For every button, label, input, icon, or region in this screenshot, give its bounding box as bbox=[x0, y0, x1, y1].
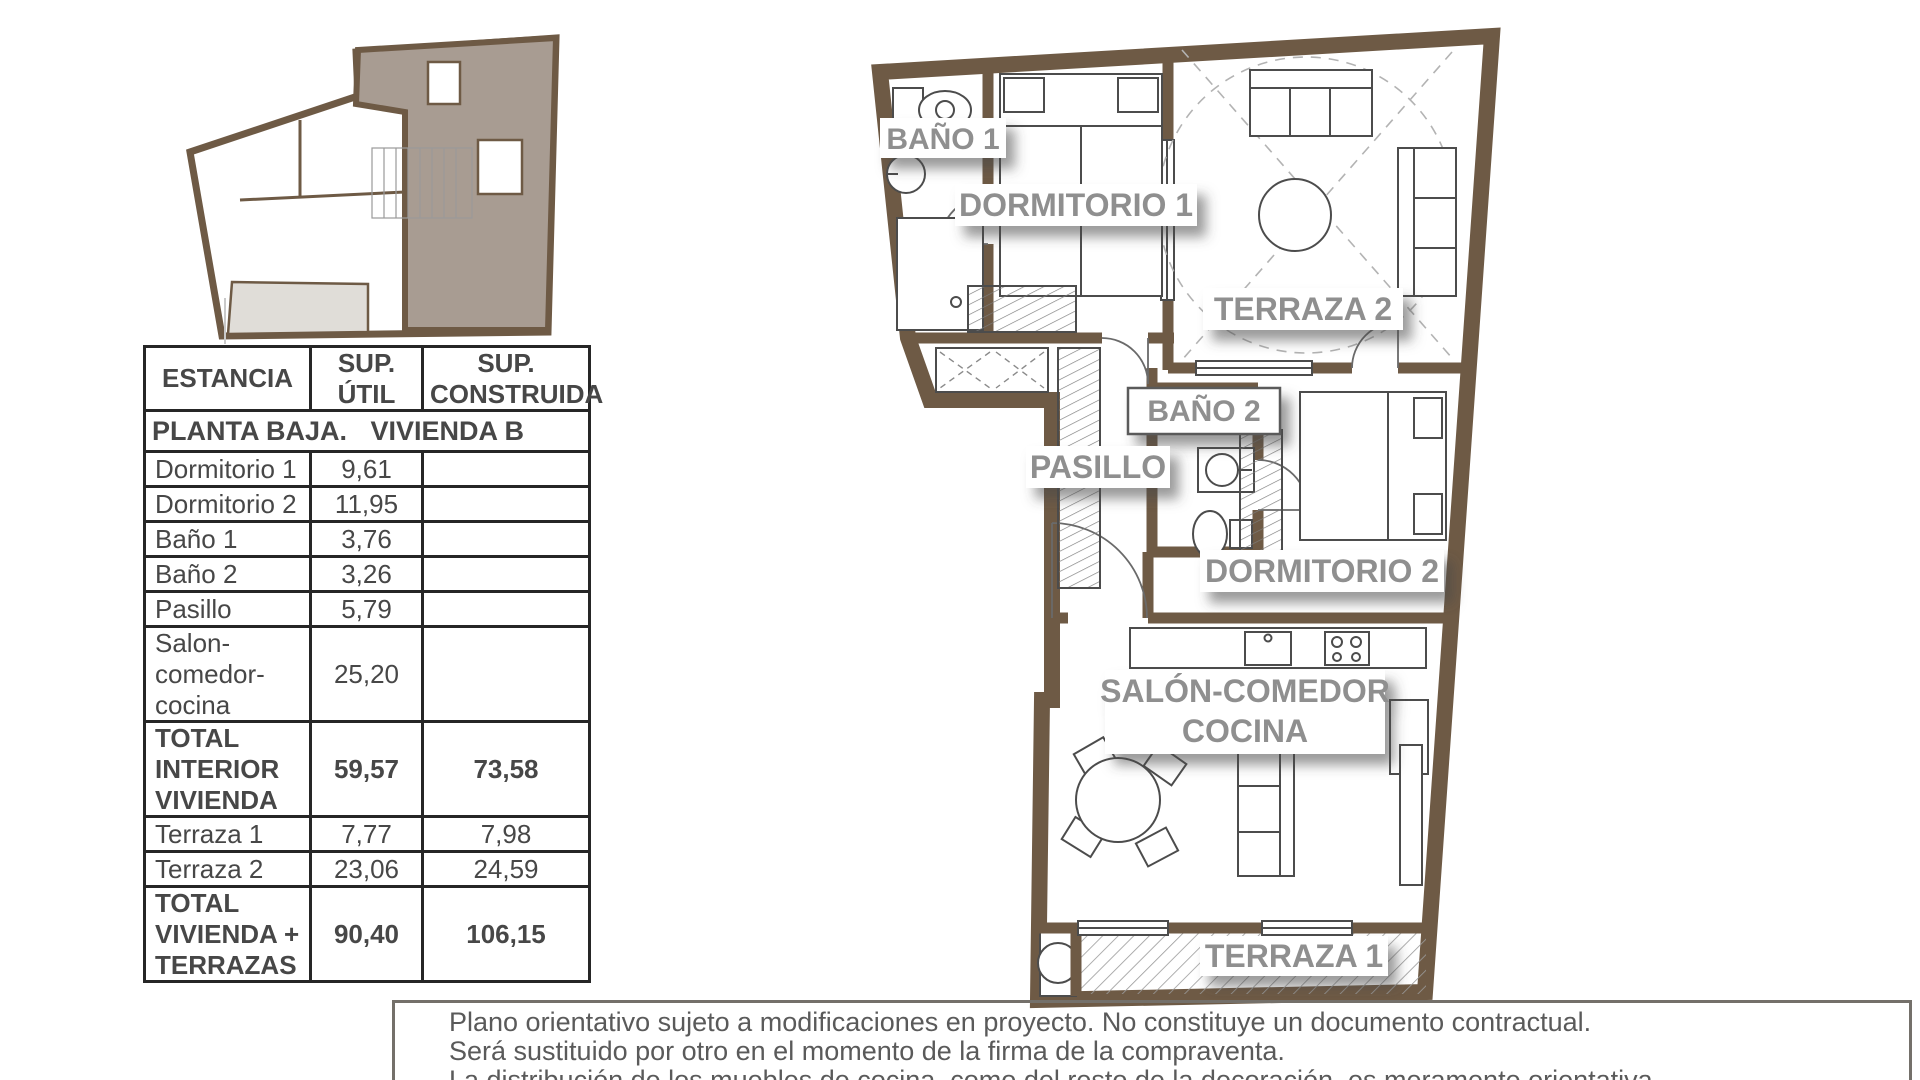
header-sup-construida: SUP.CONSTRUIDA bbox=[423, 347, 590, 411]
header-estancia: ESTANCIA bbox=[145, 347, 311, 411]
sofa-icon bbox=[1250, 70, 1372, 136]
table-row: Salon-comedor-cocina 25,20 bbox=[145, 627, 590, 722]
svg-text:TERRAZA 2: TERRAZA 2 bbox=[1214, 291, 1392, 327]
svg-text:BAÑO 2: BAÑO 2 bbox=[1147, 394, 1260, 428]
table-row: Terraza 2 23,0624,59 bbox=[145, 852, 590, 887]
svg-text:BAÑO 1: BAÑO 1 bbox=[886, 122, 999, 156]
disclaimer-box: Plano orientativo sujeto a modificacione… bbox=[392, 1000, 1912, 1080]
table-total-row: TOTALVIVIENDA +TERRAZAS 90,40106,15 bbox=[145, 887, 590, 982]
disclaimer-line: La distribución de los muebles de cocina… bbox=[449, 1066, 1909, 1080]
wardrobe-icon-dorm1 bbox=[968, 286, 1076, 332]
room-label-pasillo: PASILLO bbox=[1026, 446, 1170, 488]
sink-icon bbox=[1206, 454, 1238, 486]
svg-text:DORMITORIO 2: DORMITORIO 2 bbox=[1205, 553, 1439, 589]
room-label-dormitorio1: DORMITORIO 1 bbox=[955, 184, 1197, 226]
svg-text:DORMITORIO 1: DORMITORIO 1 bbox=[959, 187, 1193, 223]
round-table-icon bbox=[1259, 179, 1331, 251]
floor-plan-sheet: BAÑO 1 DORMITORIO 1 TERRAZA 2 BAÑO 2 PAS… bbox=[0, 0, 1920, 1080]
table-header-row: ESTANCIA SUP.ÚTIL SUP.CONSTRUIDA bbox=[145, 347, 590, 411]
room-label-dormitorio2: DORMITORIO 2 bbox=[1200, 550, 1444, 592]
room-label-bano1: BAÑO 1 bbox=[880, 118, 1006, 158]
table-row: Pasillo 5,79 bbox=[145, 592, 590, 627]
key-plan-patio-2 bbox=[428, 62, 460, 104]
round-table-icon bbox=[1076, 758, 1160, 842]
table-row: Terraza 1 7,777,98 bbox=[145, 817, 590, 852]
header-sup-util: SUP.ÚTIL bbox=[311, 347, 423, 411]
bed2-icon bbox=[1300, 392, 1446, 540]
table-row: Dormitorio 1 9,61 bbox=[145, 452, 590, 487]
hob-icon bbox=[1325, 632, 1369, 665]
section-planta: PLANTA BAJA. bbox=[152, 416, 347, 447]
key-plan-patio bbox=[478, 140, 522, 194]
sofa-icon bbox=[1398, 148, 1456, 296]
table-row: Dormitorio 2 11,95 bbox=[145, 487, 590, 522]
room-label-terraza2: TERRAZA 2 bbox=[1203, 288, 1403, 330]
disclaimer-line: Plano orientativo sujeto a modificacione… bbox=[449, 1008, 1909, 1037]
table-row: Baño 2 3,26 bbox=[145, 557, 590, 592]
key-plan bbox=[190, 38, 556, 344]
wardrobe-icon-dorm2 bbox=[1240, 430, 1282, 556]
shelf-icon bbox=[1400, 745, 1422, 885]
svg-text:COCINA: COCINA bbox=[1182, 713, 1308, 749]
key-plan-terrace bbox=[228, 282, 368, 334]
room-label-bano2: BAÑO 2 bbox=[1128, 388, 1280, 434]
disclaimer-line: Será sustituido por otro en el momento d… bbox=[449, 1037, 1909, 1066]
main-floor-plan: BAÑO 1 DORMITORIO 1 TERRAZA 2 BAÑO 2 PAS… bbox=[880, 36, 1492, 1000]
areas-table: ESTANCIA SUP.ÚTIL SUP.CONSTRUIDA PLANTA … bbox=[143, 345, 591, 983]
section-vivienda: VIVIENDA B bbox=[370, 416, 524, 447]
svg-text:PASILLO: PASILLO bbox=[1030, 449, 1166, 485]
table-total-row: TOTALINTERIORVIVIENDA 59,5773,58 bbox=[145, 722, 590, 817]
table-row: Baño 1 3,76 bbox=[145, 522, 590, 557]
room-label-terraza1: TERRAZA 1 bbox=[1200, 936, 1388, 976]
room-label-salon-cocina: SALÓN-COMEDOR COCINA bbox=[1100, 670, 1390, 754]
table-section-row: PLANTA BAJA. VIVIENDA B bbox=[145, 411, 590, 452]
svg-text:TERRAZA 1: TERRAZA 1 bbox=[1205, 938, 1383, 974]
svg-text:SALÓN-COMEDOR: SALÓN-COMEDOR bbox=[1100, 673, 1390, 709]
